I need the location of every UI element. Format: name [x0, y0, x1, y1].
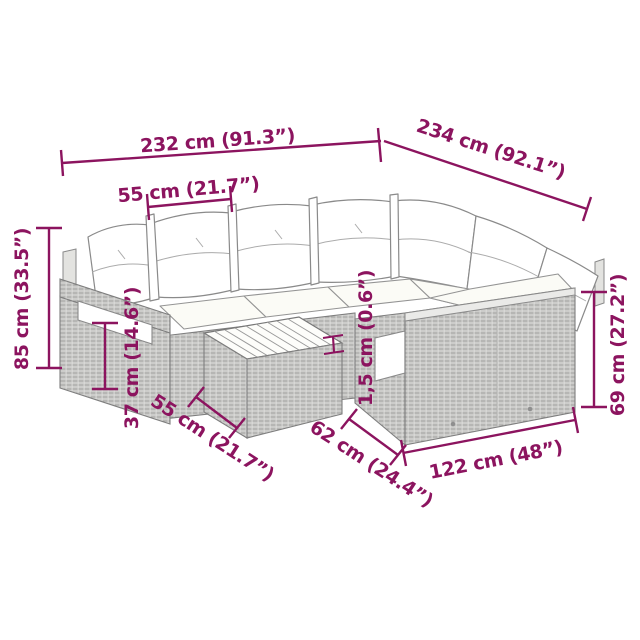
right-module — [405, 288, 575, 445]
right-frame-pole — [595, 259, 604, 306]
overall-height-label: 85 cm (33.5”) — [11, 228, 33, 370]
screw-detail — [528, 407, 533, 412]
back-cushion — [150, 212, 236, 297]
dim-overall-width: 232 cm (91.3”) — [61, 125, 381, 176]
dim-overall-height: 85 cm (33.5”) — [11, 228, 62, 370]
seat-height-label: 37 cm (14.6”) — [121, 287, 143, 429]
back-cushion — [312, 200, 396, 283]
overall-depth-label: 234 cm (92.1”) — [414, 115, 568, 184]
side-height-label: 69 cm (27.2”) — [607, 274, 629, 416]
product-dimension-diagram: 232 cm (91.3”) 234 cm (92.1”) 55 cm (21.… — [0, 0, 640, 640]
screw-detail — [451, 422, 456, 427]
diagram-canvas: 232 cm (91.3”) 234 cm (92.1”) 55 cm (21.… — [0, 0, 640, 640]
cushion-thickness-label: 1,5 cm (0.6”) — [355, 270, 377, 406]
back-cushion — [393, 200, 476, 289]
back-cushion — [231, 204, 316, 289]
corner-handle-opening — [375, 331, 405, 381]
